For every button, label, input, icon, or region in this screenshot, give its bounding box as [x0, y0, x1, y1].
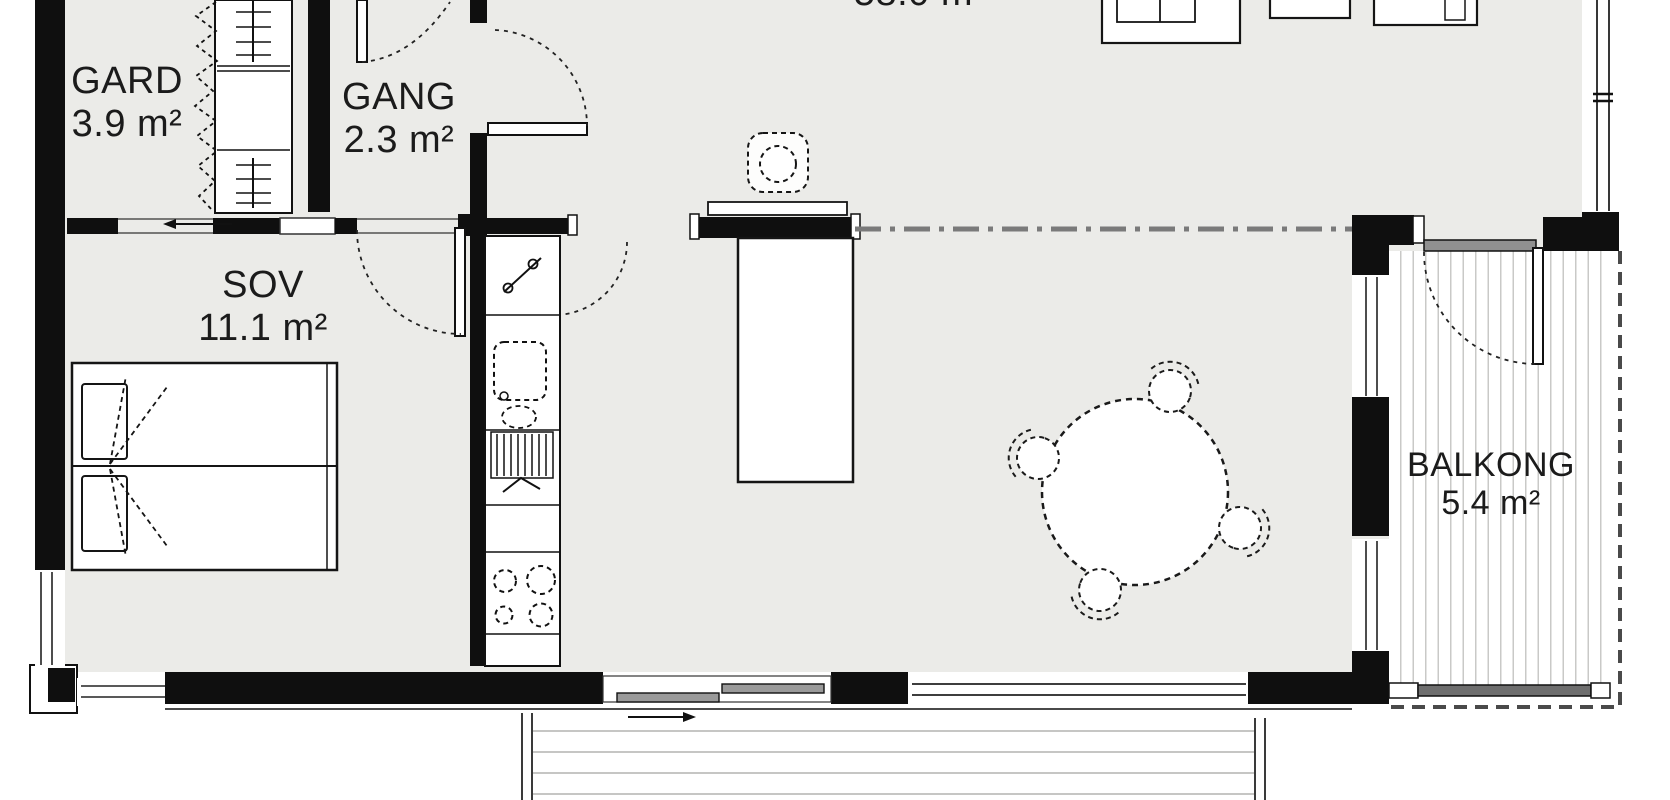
tv-bench	[1374, 0, 1477, 25]
kitchen-cabinet-door-swing	[554, 242, 627, 315]
bar-stool	[748, 133, 808, 192]
window-west-sov	[35, 570, 65, 667]
entry-door-leaf	[357, 0, 367, 62]
window-south-sov	[77, 678, 165, 706]
room-area: 5.4 m²	[1407, 484, 1575, 522]
room-label-sov: SOV 11.1 m²	[198, 264, 328, 349]
balcony-threshold	[1389, 683, 1610, 698]
side-table	[1270, 0, 1350, 18]
gang-living-door-leaf	[488, 123, 587, 135]
room-area: 58.0 m²	[854, 0, 986, 15]
balcony-door	[1424, 240, 1543, 364]
entry-door-swing	[362, 2, 450, 62]
wall-east-corner	[1582, 212, 1619, 241]
wall-balcony-west-a	[1352, 245, 1389, 275]
pillow-top	[82, 384, 127, 459]
dining-table	[1042, 399, 1228, 585]
gang-living-door	[488, 30, 587, 135]
room-area: 3.9 m²	[71, 103, 183, 146]
floor-plan: GARD 3.9 m² GANG 2.3 m² SOV 11.1 m² 58.0…	[0, 0, 1670, 800]
wall-balcony-west-b	[1352, 397, 1389, 536]
wall-sov-north-a	[67, 218, 118, 234]
wall-kitchen-north	[487, 218, 570, 234]
sov-door-leaf	[455, 228, 465, 336]
window-south-living	[908, 674, 1248, 704]
sliding-door-panel-inner	[617, 693, 719, 702]
dining-set	[1002, 355, 1276, 626]
room-label-gang: GANG 2.3 m²	[342, 76, 456, 161]
corner-southwest	[48, 668, 75, 702]
wall-gang-east-stub	[470, 0, 487, 23]
sov-door	[357, 219, 465, 336]
wardrobe	[195, 0, 292, 213]
room-label-balkong: BALKONG 5.4 m²	[1407, 446, 1575, 522]
room-name: GANG	[342, 76, 456, 119]
wall-balcony-north-a	[1352, 215, 1414, 245]
wardrobe-folding-door	[195, 2, 217, 211]
wall-gang-east	[470, 133, 487, 218]
island-half-wall	[697, 217, 853, 238]
wall-balcony-west-c	[1352, 651, 1389, 704]
sliding-terrace-door	[603, 676, 831, 722]
kitchen-island	[708, 133, 853, 482]
opening-arrow-head	[163, 219, 176, 229]
room-area: 11.1 m²	[198, 307, 328, 350]
balcony-door-jamb-cap	[1413, 216, 1424, 243]
floor-plan-drawing	[0, 0, 1670, 800]
wall-south-b	[831, 672, 908, 704]
balcony-door-swing	[1424, 252, 1536, 364]
window-balcony-west-upper	[1352, 275, 1389, 397]
wall-wardrobe-east	[308, 0, 330, 212]
island-wall-cap-west	[690, 214, 699, 239]
wall-south-a	[165, 672, 603, 704]
gang-living-door-swing	[495, 30, 587, 126]
living-furniture	[1102, 0, 1477, 43]
room-area: 2.3 m²	[342, 119, 456, 162]
kitchen-counter	[485, 236, 560, 666]
balcony-door-leaf	[1533, 248, 1543, 364]
room-name: SOV	[198, 264, 328, 307]
room-name: BALKONG	[1407, 446, 1575, 484]
balcony-door-threshold	[1424, 240, 1536, 251]
wall-sov-north-c	[335, 218, 357, 234]
wall-south-c	[1248, 672, 1352, 704]
room-name: GARD	[71, 60, 183, 103]
double-bed	[72, 363, 337, 570]
sliding-door-arrow-head	[683, 712, 696, 722]
wall-cased-segment	[280, 218, 335, 234]
armchair	[1102, 0, 1240, 43]
window-east-living	[1582, 0, 1619, 212]
island-counter-top	[708, 202, 847, 215]
wall-cap-kitchen	[568, 215, 577, 235]
wall-sov-north-b	[213, 218, 280, 234]
pillow-bottom	[82, 476, 127, 551]
entry-door	[357, 0, 450, 62]
sliding-door-panel-outer	[722, 684, 824, 693]
sov-door-swing	[357, 230, 461, 334]
island-body	[738, 238, 853, 482]
room-label-living-area: 58.0 m²	[854, 0, 986, 15]
wall-west	[35, 0, 65, 570]
room-label-gard: GARD 3.9 m²	[71, 60, 183, 145]
window-balcony-west-lower	[1352, 539, 1389, 651]
